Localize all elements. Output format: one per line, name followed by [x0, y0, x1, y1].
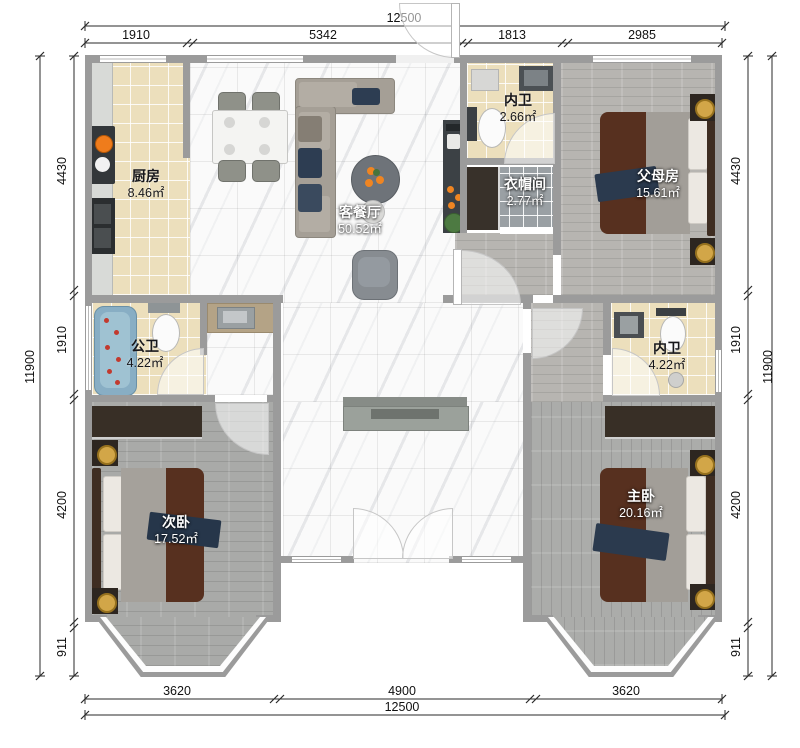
room-label-cloakroom: 衣帽间 2.77㎡ — [490, 176, 560, 209]
pillow — [686, 534, 706, 590]
wardrobe — [605, 406, 715, 439]
dim-bottom-total: 12500 — [372, 700, 432, 714]
fruit-icon — [365, 179, 373, 187]
window-ensuite-right — [716, 350, 721, 392]
dim-left-seg1: 4430 — [55, 141, 69, 201]
dim-right-seg4: 911 — [729, 617, 743, 677]
dim-right-seg1: 4430 — [729, 141, 743, 201]
wall-secondbed-right — [273, 402, 281, 622]
dim-right-total: 11900 — [761, 337, 775, 397]
pillow — [686, 476, 706, 532]
sofa-cushion — [299, 82, 357, 107]
stove-plate-icon — [94, 228, 111, 248]
wall-living-vestibule-stub — [523, 303, 531, 309]
ensuite-sink — [471, 69, 499, 91]
dim-top-seg3: 1813 — [482, 28, 542, 42]
plate-icon — [224, 117, 235, 128]
room-label-second-bedroom: 次卧 17.52㎡ — [134, 514, 218, 547]
tv-stand-top — [343, 397, 467, 406]
floor-plan-canvas: 12500 1910 5342 1813 2985 11900 4430 191… — [0, 0, 800, 748]
headboard — [706, 468, 715, 602]
room-label-ensuite-top: 内卫 2.66㎡ — [482, 92, 554, 125]
headboard — [92, 468, 101, 602]
wall-master-top — [603, 395, 722, 402]
corridor-door-leaf — [453, 249, 462, 305]
pillow — [103, 476, 123, 532]
entry-door-leaf — [451, 3, 460, 58]
toilet-tank — [148, 303, 180, 313]
plate-icon — [259, 144, 270, 155]
fruit-icon — [448, 202, 455, 209]
lamp-icon — [695, 99, 715, 119]
dim-bottom-seg2: 4900 — [372, 684, 432, 698]
lamp-icon — [695, 455, 715, 475]
wash-basin-inner — [223, 311, 247, 323]
ensuite-vanity-top — [524, 70, 548, 86]
wall-niche-right — [273, 295, 281, 402]
wall-kitchen-right — [183, 63, 190, 158]
dining-table — [212, 110, 288, 164]
wall-exterior-right — [715, 55, 722, 622]
cloakroom-opening — [500, 227, 553, 234]
room-label-kitchen: 厨房 8.46㎡ — [108, 168, 184, 201]
plate-icon — [259, 117, 270, 128]
toilet-tank — [656, 308, 686, 316]
wash-basin — [620, 316, 638, 334]
dim-right-seg2: 1910 — [729, 310, 743, 370]
window-parents — [593, 56, 691, 62]
tv-stand-recess — [371, 409, 439, 419]
room-label-master-bedroom: 主卧 20.16㎡ — [596, 488, 686, 521]
petal-icon — [115, 380, 120, 385]
petal-icon — [104, 318, 109, 323]
lamp-icon — [695, 589, 715, 609]
wardrobe — [92, 406, 202, 439]
toilet-tank — [467, 107, 477, 141]
dim-left-seg2: 1910 — [55, 310, 69, 370]
plate-icon — [224, 144, 235, 155]
window-public-bath — [86, 306, 91, 390]
dim-left-seg4: 911 — [55, 617, 69, 677]
wall-vestibule-ensuite-divider — [603, 303, 611, 355]
room-label-living-dining: 客餐厅 50.52㎡ — [316, 204, 404, 237]
pillow — [103, 534, 123, 590]
stove-plate-icon — [94, 204, 111, 224]
wall-secondbed-top-left — [92, 395, 215, 402]
lamp-icon — [97, 445, 117, 465]
wall-kitchen-bottom — [85, 295, 283, 303]
gray-pillow — [298, 116, 322, 142]
dim-bottom-seg1: 3620 — [147, 684, 207, 698]
navy-pillow — [298, 148, 322, 178]
room-label-ensuite-right: 内卫 4.22㎡ — [628, 340, 706, 373]
room-label-parents-room: 父母房 15.61㎡ — [612, 168, 704, 201]
stove-burner-icon — [95, 135, 113, 153]
window-balcony-sidelight — [462, 557, 511, 562]
lamp-icon — [695, 243, 715, 263]
room-label-public-bath: 公卫 4.22㎡ — [106, 338, 184, 371]
wall-parents-bottom — [553, 295, 722, 303]
petal-icon — [114, 330, 119, 335]
window-balcony-sidelight — [292, 557, 341, 562]
wall-ensuite-top-left — [460, 63, 467, 233]
fruit-icon — [447, 186, 454, 193]
window-kitchen — [100, 56, 166, 62]
lamp-icon — [97, 593, 117, 613]
wall-master-left — [523, 353, 531, 622]
window-dining — [207, 56, 303, 62]
shower-drain-icon — [668, 372, 684, 388]
dining-chair — [218, 160, 246, 182]
sideboard-item — [446, 124, 460, 131]
dim-top-seg4: 2985 — [612, 28, 672, 42]
armchair-cushion — [358, 257, 390, 287]
dim-top-seg1: 1910 — [106, 28, 166, 42]
navy-pillow — [352, 88, 380, 105]
kettle-icon — [447, 134, 460, 149]
plant-sprig-icon — [373, 169, 380, 176]
dim-left-seg3: 4200 — [55, 475, 69, 535]
dining-chair — [252, 160, 280, 182]
wall-secondbed-top-right — [267, 395, 281, 402]
fruit-icon — [376, 176, 384, 184]
dim-top-seg2: 5342 — [293, 28, 353, 42]
pillow — [688, 118, 708, 170]
dim-bottom-seg3: 3620 — [596, 684, 656, 698]
dim-left-total: 11900 — [23, 337, 37, 397]
dim-right-seg3: 4200 — [729, 475, 743, 535]
